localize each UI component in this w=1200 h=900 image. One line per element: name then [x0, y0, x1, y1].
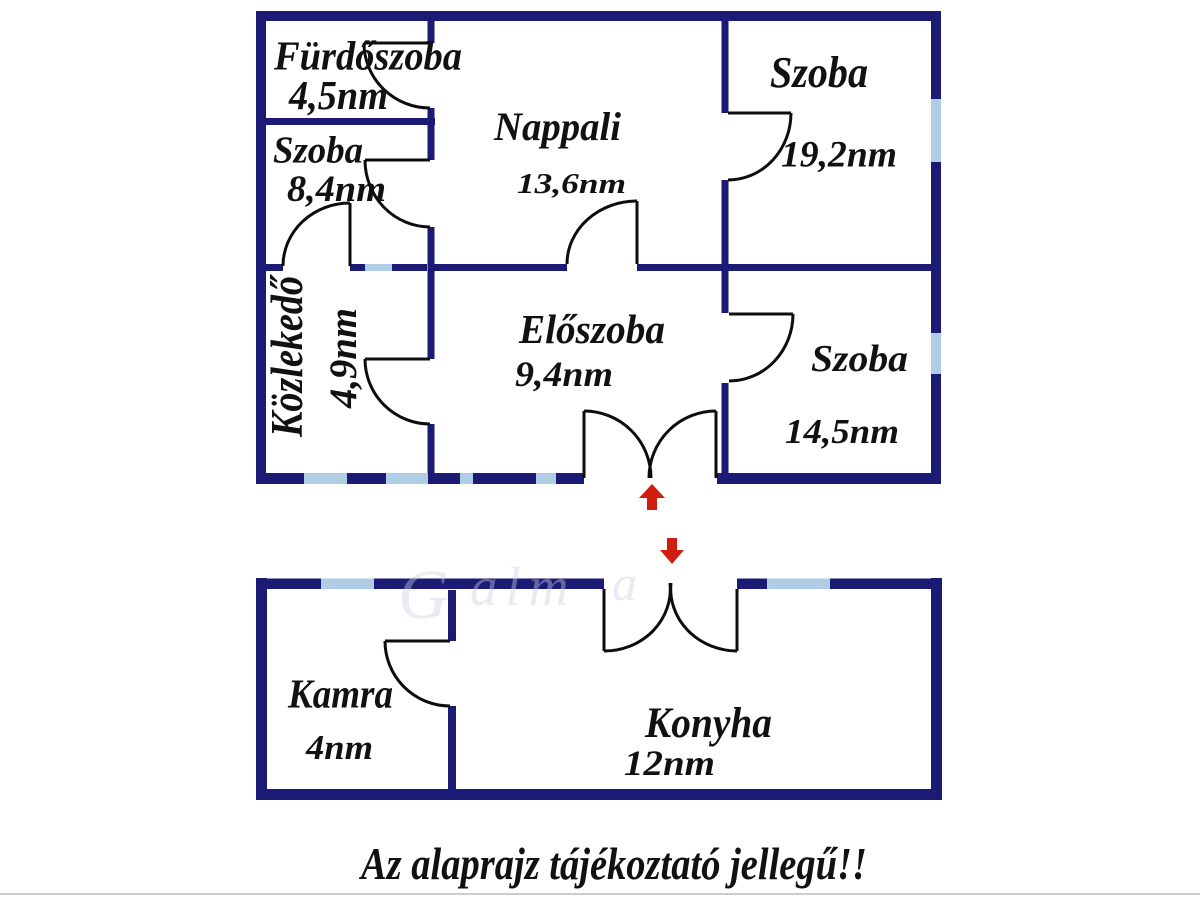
svg-text:4,9nm: 4,9nm	[322, 308, 365, 409]
svg-text:Kamra: Kamra	[287, 671, 393, 717]
svg-text:4,5nm: 4,5nm	[288, 72, 388, 118]
svg-text:Előszoba: Előszoba	[518, 306, 665, 352]
svg-text:12nm: 12nm	[624, 743, 715, 783]
svg-text:8,4nm: 8,4nm	[287, 169, 386, 210]
svg-text:a: a	[612, 555, 637, 611]
svg-text:4nm: 4nm	[305, 728, 373, 767]
svg-text:Konyha: Konyha	[644, 700, 772, 747]
svg-text:Az alaprajz tájékoztató jelleg: Az alaprajz tájékoztató jellegű!!	[358, 838, 867, 889]
svg-text:19,2nm: 19,2nm	[781, 135, 897, 176]
svg-text:G: G	[398, 557, 449, 634]
svg-text:alm: alm	[470, 556, 577, 617]
svg-text:Szoba: Szoba	[770, 48, 868, 97]
svg-text:Közlekedő: Közlekedő	[262, 274, 312, 438]
svg-text:Szoba: Szoba	[273, 130, 363, 172]
svg-text:Szoba: Szoba	[811, 338, 908, 380]
svg-text:Nappali: Nappali	[493, 104, 621, 149]
svg-text:13,6nm: 13,6nm	[517, 169, 626, 200]
svg-text:14,5nm: 14,5nm	[785, 412, 899, 451]
svg-text:9,4nm: 9,4nm	[515, 354, 613, 394]
